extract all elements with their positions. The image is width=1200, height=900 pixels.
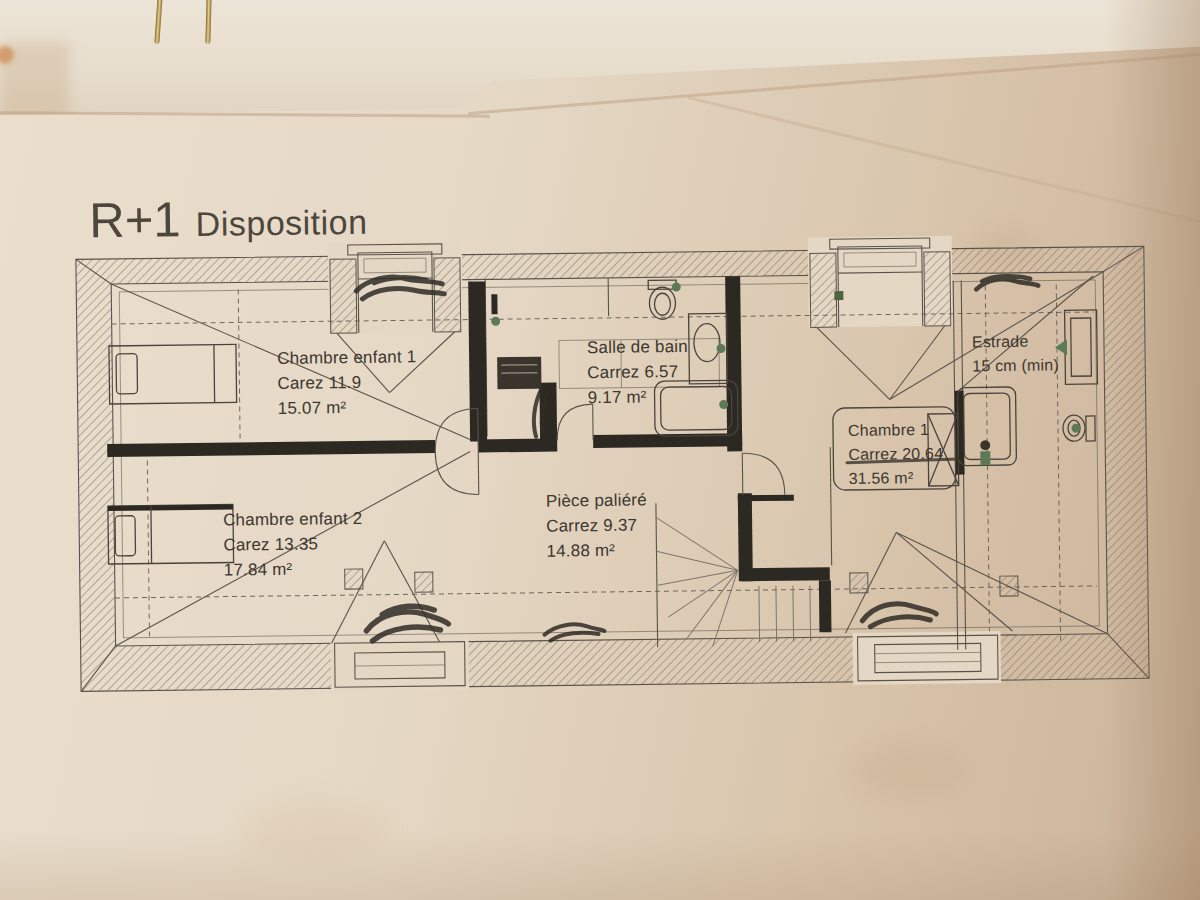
room-carrez: Carez 13.35 — [223, 531, 363, 558]
floor-plan: R+1 Disposition — [0, 0, 1200, 900]
room-name: Pièce paliéré — [546, 487, 647, 513]
load-bearing-walls — [105, 274, 966, 641]
room-carrez: Carrez 6.57 — [587, 359, 688, 385]
room-carrez: Carrez 9.37 — [546, 512, 647, 538]
washing-machine-icon — [497, 357, 541, 390]
room-label-chambre-enfant-2: Chambre enfant 2 Carez 13.35 17.84 m² — [223, 506, 363, 583]
dormer-window — [844, 531, 1019, 685]
room-note: 15 cm (min) — [972, 353, 1059, 378]
room-label-estrade: Estrade 15 cm (min) — [972, 329, 1059, 378]
room-area: 9.17 m² — [587, 384, 688, 410]
title-label: Disposition — [196, 205, 368, 241]
bed-icon — [109, 344, 237, 404]
page-title: R+1 Disposition — [89, 193, 368, 245]
room-area: 17.84 m² — [224, 556, 364, 583]
floor-plan-drawing — [58, 229, 1164, 707]
room-name: Estrade — [972, 329, 1059, 354]
room-name: Chambre 1 — [848, 418, 943, 443]
room-area: 31.56 m² — [848, 466, 943, 491]
room-label-chambre-1: Chambre 1 Carrez 20.64 31.56 m² — [848, 418, 944, 491]
room-carrez: Carez 11.9 — [277, 369, 417, 396]
room-name: Chambre enfant 2 — [223, 506, 363, 533]
floor-code: R+1 — [89, 195, 181, 245]
room-label-chambre-enfant-1: Chambre enfant 1 Carez 11.9 15.07 m² — [277, 344, 417, 421]
room-name: Salle de bain — [587, 334, 688, 360]
shower-tub-icon — [958, 387, 1017, 466]
room-name: Chambre enfant 1 — [277, 344, 417, 371]
room-area: 15.07 m² — [278, 394, 418, 421]
bed-icon — [108, 504, 234, 564]
dormer-window — [808, 236, 954, 401]
photographed-floor-plan: { "title": {"floor": "R+1", "label": "Di… — [0, 0, 1200, 900]
room-label-piece-paliere: Pièce paliéré Carrez 9.37 14.88 m² — [546, 487, 648, 563]
room-label-salle-de-bain: Salle de bain Carrez 6.57 9.17 m² — [587, 334, 689, 410]
radiator-icon — [491, 294, 497, 314]
window-icon — [1065, 310, 1098, 384]
staircase — [656, 515, 811, 647]
room-area: 14.88 m² — [546, 537, 647, 563]
